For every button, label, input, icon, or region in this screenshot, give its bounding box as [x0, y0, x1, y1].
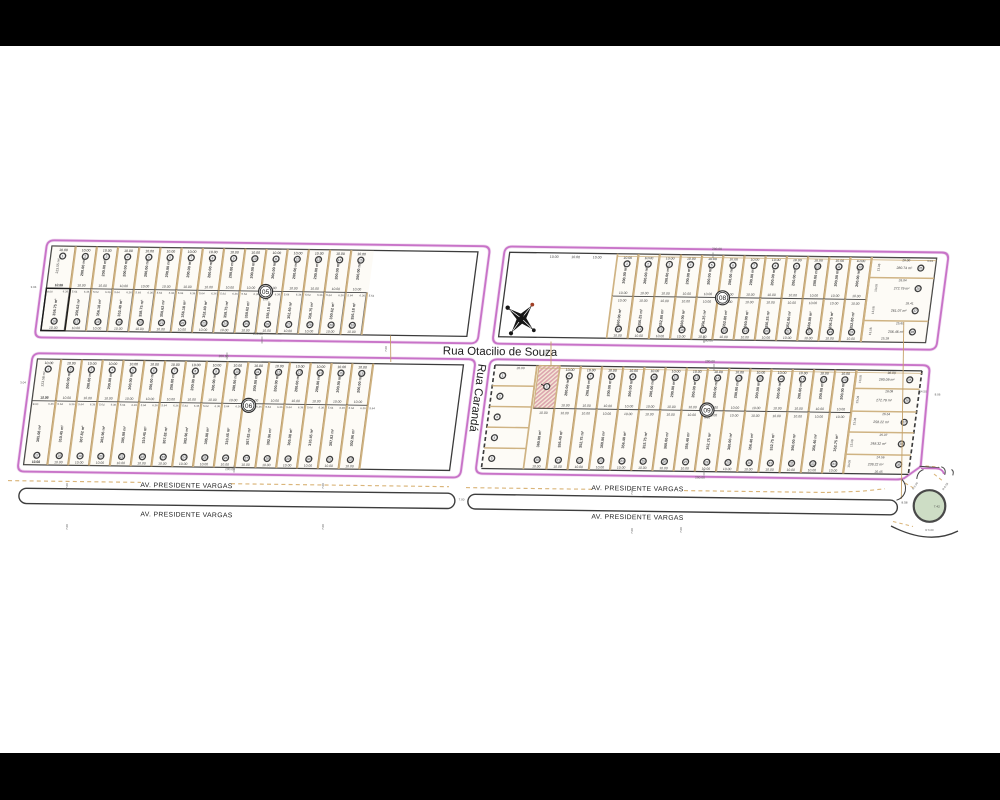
svg-text:10.00: 10.00: [220, 463, 229, 467]
svg-text:10.00: 10.00: [693, 370, 702, 374]
svg-text:3.04: 3.04: [20, 381, 26, 385]
svg-text:10.00: 10.00: [146, 397, 155, 401]
svg-text:10.00: 10.00: [331, 287, 340, 291]
svg-text:8.06: 8.06: [935, 393, 941, 397]
svg-text:8.58: 8.58: [901, 500, 907, 504]
svg-text:10.00: 10.00: [751, 414, 760, 418]
svg-text:6.36: 6.36: [173, 404, 179, 408]
svg-text:10.00: 10.00: [337, 365, 346, 369]
svg-text:10.00: 10.00: [67, 361, 76, 365]
svg-text:10.00: 10.00: [761, 336, 770, 340]
svg-text:10.00: 10.00: [830, 301, 839, 305]
svg-text:AV. PRESIDENTE VARGAS: AV. PRESIDENTE VARGAS: [591, 485, 683, 493]
svg-text:5.64: 5.64: [140, 403, 146, 407]
svg-text:10.00: 10.00: [752, 406, 761, 410]
svg-text:12.36: 12.36: [55, 283, 64, 287]
svg-text:6.36: 6.36: [296, 293, 302, 297]
svg-text:6.36: 6.36: [105, 290, 111, 294]
svg-text:10.00: 10.00: [177, 328, 186, 332]
svg-text:10.00: 10.00: [804, 336, 813, 340]
svg-text:5.64: 5.64: [93, 290, 99, 294]
svg-text:10.00: 10.00: [270, 399, 279, 403]
svg-text:10.00: 10.00: [841, 372, 850, 376]
svg-text:10.00: 10.00: [677, 334, 686, 338]
svg-text:10.00: 10.00: [787, 301, 796, 305]
svg-text:10.00: 10.00: [807, 468, 816, 472]
svg-text:10.00: 10.00: [293, 251, 302, 255]
svg-text:272.79 m²: 272.79 m²: [876, 398, 893, 402]
svg-text:10.00: 10.00: [241, 328, 250, 332]
svg-text:10.00: 10.00: [829, 469, 838, 473]
svg-text:10.00: 10.00: [681, 299, 690, 303]
svg-text:10.00: 10.00: [233, 364, 242, 368]
svg-text:10.00: 10.00: [701, 467, 710, 471]
svg-text:10.00: 10.00: [88, 362, 97, 366]
svg-text:10.00: 10.00: [145, 249, 154, 253]
svg-text:7.00: 7.00: [321, 524, 325, 530]
svg-text:10.00: 10.00: [208, 398, 217, 402]
svg-text:10.00: 10.00: [75, 461, 84, 465]
svg-text:10.00: 10.00: [740, 335, 749, 339]
svg-text:5.64: 5.64: [241, 292, 247, 296]
svg-text:7.00: 7.00: [65, 524, 69, 530]
svg-text:6.36: 6.36: [232, 292, 238, 296]
svg-text:10.00: 10.00: [788, 293, 797, 297]
svg-text:5.64: 5.64: [224, 404, 230, 408]
svg-text:6.36: 6.36: [211, 292, 217, 296]
svg-text:10.00: 10.00: [192, 363, 201, 367]
svg-text:24.56: 24.56: [876, 455, 885, 459]
svg-text:10.00: 10.00: [141, 284, 150, 288]
svg-text:10.00: 10.00: [646, 405, 655, 409]
svg-text:5.64: 5.64: [284, 293, 290, 297]
svg-text:5.64: 5.64: [78, 402, 84, 406]
svg-text:10.00: 10.00: [275, 364, 284, 368]
svg-text:10.00: 10.00: [62, 396, 71, 400]
svg-text:6.36: 6.36: [62, 289, 68, 293]
svg-text:10.00: 10.00: [137, 461, 146, 465]
svg-text:10.00: 10.00: [225, 286, 234, 290]
svg-text:10.00: 10.00: [71, 326, 80, 330]
svg-text:272.79 m²: 272.79 m²: [893, 287, 910, 291]
svg-text:10.00: 10.00: [326, 330, 335, 334]
svg-text:5.64: 5.64: [368, 294, 374, 298]
svg-text:10.00: 10.00: [187, 250, 196, 254]
svg-text:10.00: 10.00: [629, 369, 638, 373]
svg-text:10.00: 10.00: [272, 251, 281, 255]
svg-text:10.00: 10.00: [574, 465, 583, 469]
svg-text:6.36: 6.36: [277, 405, 283, 409]
svg-text:11.53: 11.53: [32, 460, 41, 464]
svg-text:10.00: 10.00: [532, 464, 541, 468]
svg-text:AV. PRESIDENTE VARGAS: AV. PRESIDENTE VARGAS: [591, 514, 683, 522]
svg-text:6.36: 6.36: [339, 406, 345, 410]
svg-text:6.36: 6.36: [235, 404, 241, 408]
svg-text:10.00: 10.00: [719, 335, 728, 339]
svg-text:5.64: 5.64: [286, 405, 292, 409]
svg-text:5.64: 5.64: [57, 402, 63, 406]
svg-text:10.00: 10.00: [539, 411, 548, 415]
svg-text:5.64: 5.64: [114, 290, 120, 294]
svg-text:AV. PRESIDENTE VARGAS: AV. PRESIDENTE VARGAS: [140, 482, 232, 490]
svg-text:6.64: 6.64: [263, 297, 269, 301]
svg-text:10.00: 10.00: [241, 463, 250, 467]
svg-text:5.64: 5.64: [307, 405, 313, 409]
svg-text:10.00: 10.00: [667, 405, 676, 409]
svg-text:5.64: 5.64: [161, 403, 167, 407]
svg-text:10.00: 10.00: [119, 284, 128, 288]
svg-text:10.00: 10.00: [95, 461, 104, 465]
svg-text:10.00: 10.00: [179, 462, 188, 466]
svg-text:10.00: 10.00: [104, 396, 113, 400]
svg-text:25.69: 25.69: [896, 321, 905, 325]
svg-text:7.00: 7.00: [459, 498, 465, 502]
svg-text:3.04: 3.04: [927, 259, 933, 263]
svg-text:AV. PRESIDENTE VARGAS: AV. PRESIDENTE VARGAS: [140, 511, 232, 519]
svg-text:10.00: 10.00: [595, 465, 604, 469]
svg-text:10.00: 10.00: [54, 460, 63, 464]
svg-text:10.00: 10.00: [714, 370, 723, 374]
svg-text:6.36: 6.36: [338, 293, 344, 297]
svg-text:6.36: 6.36: [110, 403, 116, 407]
svg-text:08: 08: [719, 295, 727, 302]
svg-text:5.64: 5.64: [182, 404, 188, 408]
svg-text:06: 06: [245, 403, 253, 410]
svg-text:6.36: 6.36: [147, 291, 153, 295]
svg-text:239.22 m²: 239.22 m²: [867, 462, 884, 466]
svg-text:10.00: 10.00: [783, 336, 792, 340]
svg-text:10.00: 10.00: [682, 292, 691, 296]
svg-text:09: 09: [703, 407, 711, 414]
svg-text:8.00: 8.00: [33, 402, 39, 406]
svg-text:10.00: 10.00: [634, 334, 643, 338]
svg-text:26.41: 26.41: [905, 301, 914, 305]
svg-text:10.00: 10.00: [324, 464, 333, 468]
svg-text:6.36: 6.36: [152, 403, 158, 407]
svg-text:10.00: 10.00: [347, 330, 356, 334]
svg-text:10.00: 10.00: [247, 286, 256, 290]
svg-text:10.00: 10.00: [852, 294, 861, 298]
svg-text:10.00: 10.00: [645, 412, 654, 416]
svg-text:10.00: 10.00: [777, 371, 786, 375]
svg-text:10.00: 10.00: [77, 283, 86, 287]
svg-text:5.64: 5.64: [99, 403, 105, 407]
svg-text:10.00: 10.00: [809, 294, 818, 298]
svg-text:10.00: 10.00: [166, 250, 175, 254]
svg-text:10.00: 10.00: [831, 294, 840, 298]
svg-text:10.00: 10.00: [316, 365, 325, 369]
svg-text:10.00: 10.00: [581, 411, 590, 415]
svg-text:6.36: 6.36: [90, 402, 96, 406]
svg-text:10.00: 10.00: [846, 337, 855, 341]
svg-text:6.36: 6.36: [359, 294, 365, 298]
svg-text:10.00: 10.00: [624, 412, 633, 416]
svg-text:6.36: 6.36: [190, 291, 196, 295]
svg-text:3.04: 3.04: [31, 285, 37, 289]
svg-text:10.00: 10.00: [587, 368, 596, 372]
svg-text:10.00: 10.00: [357, 252, 366, 256]
svg-text:10.00: 10.00: [808, 301, 817, 305]
svg-text:10.00: 10.00: [303, 464, 312, 468]
svg-text:10.00: 10.00: [44, 361, 53, 365]
svg-text:200.00: 200.00: [703, 339, 713, 343]
svg-text:R 6.00: R 6.00: [925, 528, 934, 532]
svg-text:10.00: 10.00: [756, 371, 765, 375]
svg-text:10.00: 10.00: [199, 328, 208, 332]
svg-text:10.00: 10.00: [794, 407, 803, 411]
svg-text:10.00: 10.00: [650, 369, 659, 373]
svg-text:280.74 m²: 280.74 m²: [896, 266, 913, 270]
svg-text:10.00: 10.00: [204, 285, 213, 289]
svg-text:10.00: 10.00: [262, 463, 271, 467]
svg-text:10.00: 10.00: [103, 249, 112, 253]
svg-text:10.00: 10.00: [183, 285, 192, 289]
svg-text:5.64: 5.64: [203, 404, 209, 408]
svg-text:10.00: 10.00: [209, 250, 218, 254]
svg-text:10.00: 10.00: [671, 369, 680, 373]
svg-text:10.00: 10.00: [687, 413, 696, 417]
svg-text:6.01: 6.01: [704, 416, 710, 420]
svg-text:10.00: 10.00: [814, 415, 823, 419]
svg-text:10.00: 10.00: [315, 252, 324, 256]
svg-text:10.00: 10.00: [158, 462, 167, 466]
svg-text:6.36: 6.36: [214, 404, 220, 408]
svg-text:10.00: 10.00: [688, 405, 697, 409]
svg-text:7.00: 7.00: [630, 489, 634, 495]
svg-text:10.00: 10.00: [617, 466, 626, 470]
svg-text:10.00: 10.00: [289, 286, 298, 290]
svg-text:10.00: 10.00: [98, 284, 107, 288]
svg-text:6.36: 6.36: [69, 402, 75, 406]
svg-text:10.00: 10.00: [702, 300, 711, 304]
svg-text:10.00: 10.00: [49, 326, 58, 330]
svg-text:10.00: 10.00: [565, 368, 574, 372]
svg-text:5.64: 5.64: [72, 290, 78, 294]
svg-text:10.00: 10.00: [229, 398, 238, 402]
svg-text:10.00: 10.00: [608, 369, 617, 373]
svg-text:7.00: 7.00: [65, 483, 69, 489]
svg-text:10.00: 10.00: [703, 292, 712, 296]
svg-text:10.00: 10.00: [125, 397, 134, 401]
svg-text:5.64: 5.64: [305, 293, 311, 297]
svg-text:10.00: 10.00: [582, 404, 591, 408]
svg-text:10.00: 10.00: [187, 398, 196, 402]
svg-text:10.00: 10.00: [786, 468, 795, 472]
svg-text:10.00: 10.00: [772, 414, 781, 418]
svg-text:7.00: 7.00: [384, 346, 388, 352]
svg-text:14.50: 14.50: [919, 390, 927, 394]
svg-text:26.00: 26.00: [902, 258, 911, 262]
svg-text:10.00: 10.00: [345, 464, 354, 468]
svg-text:10.00: 10.00: [603, 404, 612, 408]
svg-text:10.00: 10.00: [836, 415, 845, 419]
svg-text:200.00: 200.00: [705, 359, 715, 363]
svg-text:10.00: 10.00: [746, 293, 755, 297]
svg-text:5.64: 5.64: [348, 406, 354, 410]
svg-text:10.00: 10.00: [660, 299, 669, 303]
svg-text:5.64: 5.64: [347, 293, 353, 297]
svg-text:5.64: 5.64: [265, 405, 271, 409]
svg-text:10.00: 10.00: [799, 371, 808, 375]
svg-text:10.00: 10.00: [851, 302, 860, 306]
svg-text:280.09 m²: 280.09 m²: [879, 378, 896, 382]
svg-text:5.64: 5.64: [135, 290, 141, 294]
svg-text:10.00: 10.00: [310, 287, 319, 291]
svg-text:10.00: 10.00: [659, 466, 668, 470]
svg-text:6.36: 6.36: [48, 402, 54, 406]
svg-text:10.00: 10.00: [220, 328, 229, 332]
svg-text:6.36: 6.36: [194, 404, 200, 408]
svg-text:6.36: 6.36: [318, 406, 324, 410]
svg-text:10.00: 10.00: [199, 462, 208, 466]
svg-text:10.00: 10.00: [735, 370, 744, 374]
svg-text:10.00: 10.00: [625, 404, 634, 408]
svg-text:5.64: 5.64: [120, 403, 126, 407]
svg-text:6.36: 6.36: [256, 405, 262, 409]
svg-text:20.00: 20.00: [516, 366, 525, 370]
svg-text:5.64: 5.64: [156, 291, 162, 295]
svg-text:10.00: 10.00: [354, 400, 363, 404]
svg-text:25.37: 25.37: [879, 433, 888, 437]
svg-text:248.32 m²: 248.32 m²: [870, 442, 887, 446]
svg-text:36.00: 36.00: [887, 371, 896, 375]
svg-text:10.00: 10.00: [291, 399, 300, 403]
svg-text:26.04: 26.04: [898, 278, 907, 282]
svg-text:7.00: 7.00: [679, 527, 683, 533]
svg-text:10.00: 10.00: [108, 362, 117, 366]
svg-text:6.36: 6.36: [131, 403, 137, 407]
svg-text:25.28: 25.28: [881, 336, 890, 340]
svg-text:6.36: 6.36: [317, 293, 323, 297]
svg-text:7.00: 7.00: [630, 528, 634, 534]
svg-text:7.00: 7.00: [545, 351, 549, 357]
svg-text:10.00: 10.00: [602, 412, 611, 416]
svg-text:10.00: 10.00: [793, 414, 802, 418]
svg-text:6.36: 6.36: [298, 405, 304, 409]
svg-text:10.00: 10.00: [150, 363, 159, 367]
svg-text:10.00: 10.00: [262, 329, 271, 333]
svg-text:5.64: 5.64: [220, 292, 226, 296]
svg-text:28.08: 28.08: [885, 389, 894, 393]
svg-text:10.00: 10.00: [93, 326, 102, 330]
svg-text:10.00: 10.00: [571, 255, 580, 259]
svg-text:8.00: 8.00: [47, 290, 53, 294]
svg-text:10.00: 10.00: [296, 365, 305, 369]
svg-text:05: 05: [262, 289, 270, 296]
svg-text:6.36: 6.36: [168, 291, 174, 295]
svg-text:200.00: 200.00: [253, 332, 263, 336]
svg-text:200.00: 200.00: [695, 476, 705, 480]
svg-text:6.36: 6.36: [274, 292, 280, 296]
svg-text:6.36: 6.36: [126, 290, 132, 294]
svg-text:10.00: 10.00: [336, 252, 345, 256]
svg-text:10.00: 10.00: [353, 287, 362, 291]
svg-text:5.64: 5.64: [199, 291, 205, 295]
svg-text:258.22 m²: 258.22 m²: [873, 420, 890, 424]
svg-text:10.00: 10.00: [116, 461, 125, 465]
svg-text:200.00: 200.00: [225, 467, 235, 471]
svg-text:200.00: 200.00: [712, 247, 722, 251]
svg-text:Rua Otacilio de Souza: Rua Otacilio de Souza: [443, 345, 558, 359]
svg-text:20.45: 20.45: [874, 470, 883, 474]
svg-text:10.00: 10.00: [619, 291, 628, 295]
svg-text:10.00: 10.00: [135, 327, 144, 331]
svg-text:10.00: 10.00: [655, 334, 664, 338]
svg-text:26.54: 26.54: [882, 412, 891, 416]
svg-text:10.00: 10.00: [83, 396, 92, 400]
svg-text:10.00: 10.00: [744, 467, 753, 471]
svg-text:10.00: 10.00: [820, 371, 829, 375]
svg-text:10.00: 10.00: [666, 413, 675, 417]
svg-text:10.00: 10.00: [661, 292, 670, 296]
svg-text:256.46 m²: 256.46 m²: [888, 330, 905, 334]
svg-text:10.00: 10.00: [212, 363, 221, 367]
svg-text:10.00: 10.00: [638, 466, 647, 470]
svg-text:10.00: 10.00: [680, 466, 689, 470]
svg-text:261.07 m²: 261.07 m²: [891, 309, 908, 313]
svg-text:10.00: 10.00: [230, 250, 239, 254]
svg-text:5.64: 5.64: [328, 406, 334, 410]
svg-text:10.00: 10.00: [640, 291, 649, 295]
svg-text:10.00: 10.00: [745, 300, 754, 304]
svg-text:10.00: 10.00: [305, 329, 314, 333]
svg-text:10.00: 10.00: [593, 255, 602, 259]
svg-text:10.00: 10.00: [283, 329, 292, 333]
svg-text:10.00: 10.00: [765, 468, 774, 472]
svg-text:10.00: 10.00: [129, 362, 138, 366]
svg-text:10.00: 10.00: [162, 285, 171, 289]
svg-text:10.00: 10.00: [166, 397, 175, 401]
svg-text:10.00: 10.00: [114, 327, 123, 331]
svg-text:10.00: 10.00: [81, 248, 90, 252]
svg-text:6.36: 6.36: [84, 290, 90, 294]
svg-text:10.00: 10.00: [773, 406, 782, 410]
svg-text:10.00: 10.00: [283, 463, 292, 467]
svg-text:10.00: 10.00: [723, 467, 732, 471]
svg-text:10.00: 10.00: [312, 399, 321, 403]
svg-text:10.00: 10.00: [59, 248, 68, 252]
svg-text:10.00: 10.00: [618, 298, 627, 302]
svg-text:10.00: 10.00: [730, 406, 739, 410]
svg-text:10.00: 10.00: [825, 337, 834, 341]
svg-text:10.00: 10.00: [639, 299, 648, 303]
svg-text:6.36: 6.36: [360, 406, 366, 410]
svg-text:10.00: 10.00: [767, 293, 776, 297]
svg-text:10.00: 10.00: [553, 465, 562, 469]
svg-text:7.42: 7.42: [934, 504, 940, 508]
svg-text:10.00: 10.00: [333, 400, 342, 404]
svg-text:10.00: 10.00: [254, 364, 263, 368]
svg-text:10.00: 10.00: [561, 403, 570, 407]
svg-text:10.00: 10.00: [836, 407, 845, 411]
svg-text:7.00: 7.00: [321, 483, 325, 489]
svg-text:10.00: 10.00: [251, 251, 260, 255]
svg-text:10.00: 10.00: [560, 411, 569, 415]
svg-text:10.00: 10.00: [550, 255, 559, 259]
svg-text:10.00: 10.00: [171, 363, 180, 367]
svg-text:12.36: 12.36: [40, 396, 49, 400]
svg-text:10.00: 10.00: [730, 414, 739, 418]
svg-text:10.00: 10.00: [358, 365, 367, 369]
svg-text:10.00: 10.00: [766, 301, 775, 305]
svg-text:10.00: 10.00: [815, 407, 824, 411]
svg-text:10.00: 10.00: [124, 249, 133, 253]
svg-text:5.64: 5.64: [369, 406, 375, 410]
svg-text:5.64: 5.64: [326, 293, 332, 297]
svg-text:5.64: 5.64: [178, 291, 184, 295]
svg-text:10.00: 10.00: [156, 327, 165, 331]
svg-text:10.00: 10.00: [613, 334, 622, 338]
